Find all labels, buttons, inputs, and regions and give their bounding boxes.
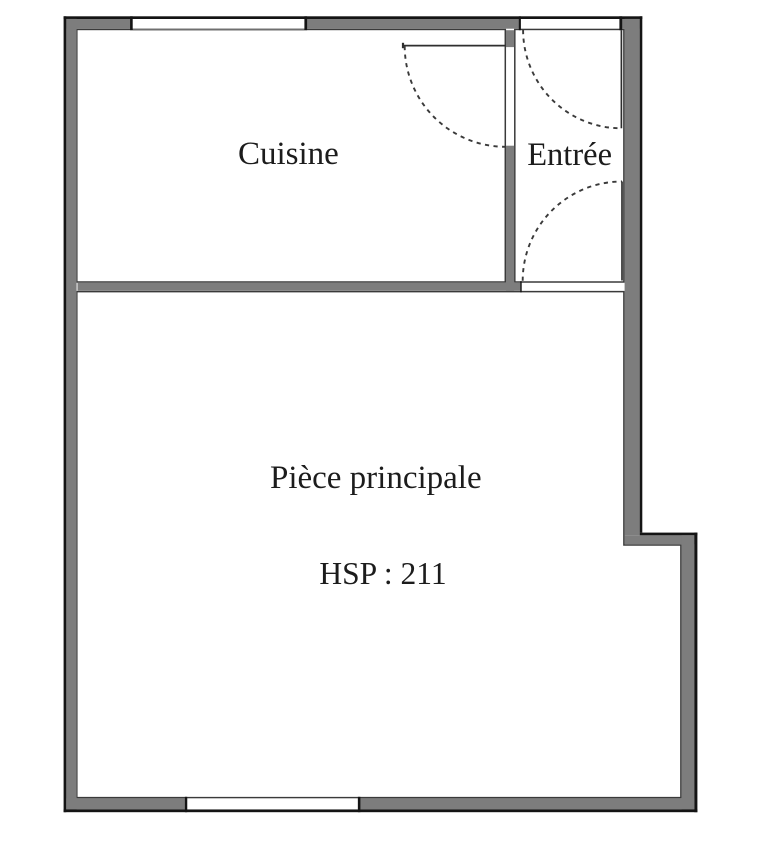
svg-text:Cuisine: Cuisine — [238, 136, 339, 172]
svg-text:HSP : 211: HSP : 211 — [319, 556, 446, 591]
svg-text:Entrée: Entrée — [527, 137, 612, 173]
svg-text:Pièce principale: Pièce principale — [270, 460, 482, 496]
